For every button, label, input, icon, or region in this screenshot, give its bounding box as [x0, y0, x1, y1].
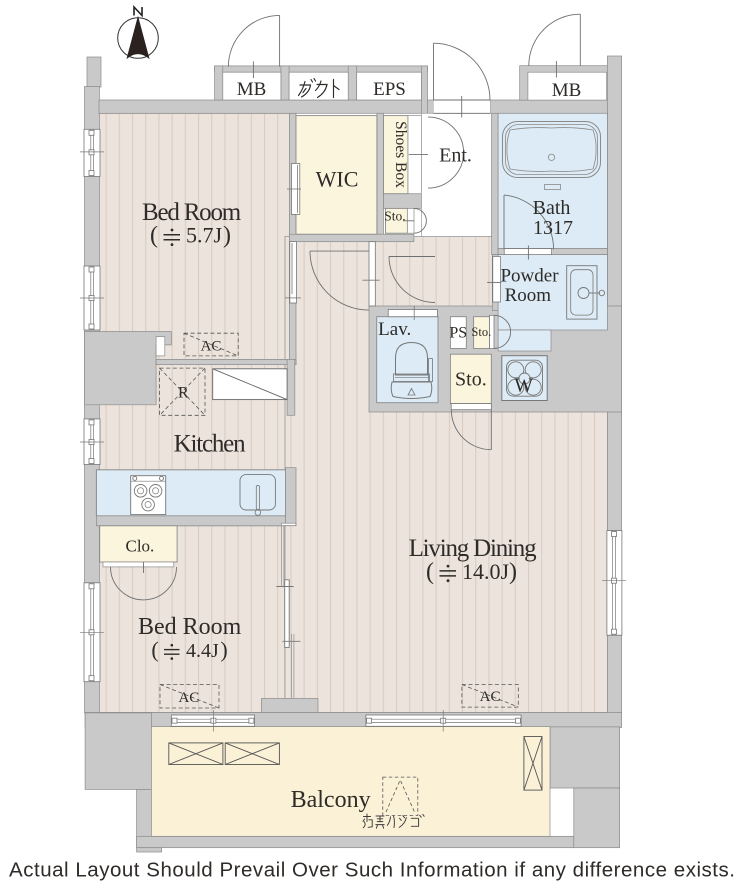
svg-text:Balcony: Balcony: [291, 787, 371, 813]
svg-text:Shoes Box: Shoes Box: [392, 121, 409, 188]
svg-text:MB: MB: [552, 80, 582, 101]
svg-text:Powder: Powder: [500, 266, 559, 287]
svg-text:Sto.: Sto.: [471, 325, 491, 339]
svg-text:Kitchen: Kitchen: [174, 431, 246, 458]
svg-text:): ): [509, 559, 517, 585]
svg-text:Ent.: Ent.: [439, 145, 472, 167]
svg-text:Actual Layout Should Prevail O: Actual Layout Should Prevail Over Such I…: [9, 859, 735, 882]
svg-text:1317: 1317: [533, 217, 573, 239]
svg-text:14.0J: 14.0J: [462, 559, 510, 584]
svg-text:(: (: [426, 559, 434, 585]
svg-text:WIC: WIC: [316, 167, 359, 192]
svg-text:Bath: Bath: [533, 197, 571, 219]
svg-text:MB: MB: [237, 79, 267, 100]
svg-text:AC: AC: [201, 338, 222, 354]
svg-text:Lav.: Lav.: [378, 319, 411, 340]
svg-text:W: W: [514, 375, 533, 397]
svg-text:Sto.: Sto.: [384, 209, 405, 224]
svg-text:Clo.: Clo.: [125, 537, 154, 556]
svg-text:PS: PS: [449, 325, 467, 342]
svg-text:Sto.: Sto.: [455, 369, 487, 391]
svg-text:R: R: [178, 385, 189, 402]
svg-text:(: (: [150, 223, 158, 249]
svg-text:EPS: EPS: [373, 79, 406, 100]
svg-text:AC: AC: [178, 690, 199, 706]
svg-text:(: (: [151, 637, 158, 662]
svg-text:AC: AC: [480, 689, 501, 705]
svg-text:): ): [220, 637, 227, 662]
svg-text:Room: Room: [505, 285, 552, 306]
svg-text:4.4J: 4.4J: [186, 640, 219, 662]
svg-text:5.7J: 5.7J: [186, 223, 223, 248]
svg-text:): ): [223, 223, 231, 249]
